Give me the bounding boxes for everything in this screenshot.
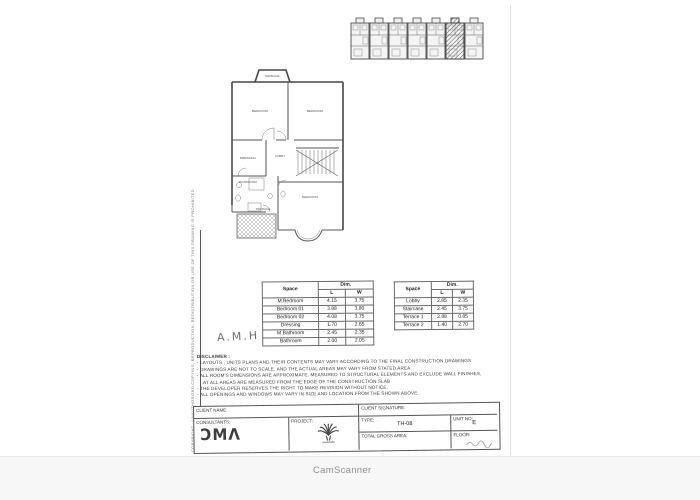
room-width: 2.35 xyxy=(346,329,374,337)
camscanner-band: CamScanner xyxy=(0,456,700,500)
room-length: 2.00 xyxy=(319,337,346,345)
room-length: 3.88 xyxy=(318,305,345,313)
floor-cell: FLOOR: xyxy=(451,431,497,449)
rooms-header-l: L xyxy=(318,289,345,297)
bay-window-bottom xyxy=(295,230,322,241)
area-width: 2.70 xyxy=(453,321,474,329)
area-length: 2.45 xyxy=(432,305,453,313)
area-length: 2.88 xyxy=(432,313,453,321)
label-dressing: DRESSING xyxy=(240,156,257,160)
handwritten-initials: A.M.H xyxy=(217,329,260,344)
type-value: TH-08 xyxy=(359,420,450,427)
room-labels: TERRACE BEDROOM BEDROOM DRESSING LOBBY B… xyxy=(239,74,323,211)
scanned-floorplan-page: COPYRIGHT : UNAUTHORIZED COPYING, REPROD… xyxy=(0,0,700,500)
client-name-label: CLIENT NAME: xyxy=(196,406,356,413)
area-width: 0.85 xyxy=(453,313,474,321)
dma-consultants-logo: ƆMΛ xyxy=(200,425,241,444)
terrace-hatch xyxy=(237,214,276,238)
disclaimer-line: - ALL OPENINGS AND WINDOWS MAY VARY IN S… xyxy=(197,390,497,399)
label-lobby: LOBBY xyxy=(275,154,285,158)
area-length: 1.40 xyxy=(432,321,453,329)
room-length: 4.08 xyxy=(318,313,345,321)
door-swings xyxy=(238,128,286,212)
key-plan-unit-strip xyxy=(350,15,484,65)
label-bedroom-bottom: BEDROOM xyxy=(302,195,318,199)
area-width: 2.35 xyxy=(452,297,473,305)
label-terrace-bottom: TERRACE xyxy=(256,207,271,211)
room-dimensions-table: Space Dim. L W M.Bedroom 4.15 3.75 Bedro… xyxy=(262,281,375,347)
project-cell: PROJECT: xyxy=(289,417,359,451)
staircase xyxy=(296,150,338,176)
areas-header-space: Space xyxy=(394,282,431,298)
table-row: Bathroom 2.00 2.05 xyxy=(263,337,374,346)
total-area-label: TOTAL GROSS AREA: xyxy=(361,432,448,438)
areas-header-w: W xyxy=(452,289,473,297)
floor-label: FLOOR: xyxy=(453,432,495,438)
floor-value-handwriting xyxy=(465,438,493,449)
room-name: Bathroom xyxy=(263,337,319,345)
type-cell: TYPE: TH-08 xyxy=(359,415,451,432)
unit-no-cell: UNIT NO: E xyxy=(451,415,497,432)
floor-plan: TERRACE BEDROOM BEDROOM DRESSING LOBBY B… xyxy=(218,64,348,242)
room-width: 2.05 xyxy=(346,337,374,345)
highlighted-unit-hatch xyxy=(446,18,464,59)
label-bedroom-tl: BEDROOM xyxy=(252,109,268,113)
room-length: 4.15 xyxy=(318,297,345,305)
room-width: 2.65 xyxy=(346,321,374,329)
room-length: 2.45 xyxy=(319,329,346,337)
room-width: 3.80 xyxy=(345,305,373,313)
camscanner-watermark: CamScanner xyxy=(313,465,371,476)
area-name: Terrace 2 xyxy=(395,322,432,330)
consultants-cell: CONSULTANTS: ƆMΛ xyxy=(194,418,289,452)
unit-no-value: E xyxy=(451,420,497,427)
area-width: 3.75 xyxy=(452,305,473,313)
label-terrace-top: TERRACE xyxy=(265,74,280,78)
table-row: Terrace 2 1.40 2.70 xyxy=(395,321,474,330)
disclaimer-block: DISCLAIMER : - LAYOUTS , UNITS PLANS AND… xyxy=(197,352,497,399)
areas-dimensions-table: Space Dim. L W Lobby 2.85 2.35 Staircase… xyxy=(394,281,474,331)
label-bedroom-tr: BEDROOM xyxy=(307,109,323,113)
room-width: 3.75 xyxy=(345,313,373,321)
title-block: CLIENT NAME: CLIENT SIGNATURE: CONSULTAN… xyxy=(193,402,501,454)
palm-tree-logo xyxy=(315,422,341,446)
page-right-edge-line xyxy=(510,5,511,455)
total-area-cell: TOTAL GROSS AREA: xyxy=(359,431,451,449)
client-signature-label: CLIENT SIGNATURE: xyxy=(361,404,495,411)
area-length: 2.85 xyxy=(431,297,452,305)
rooms-header-w: W xyxy=(345,289,373,297)
bay-window-bottom-inner xyxy=(297,230,320,239)
rooms-header-space: Space xyxy=(262,281,318,297)
label-bathroom: BATHROOM xyxy=(239,180,257,184)
consultants-label: CONSULTANTS: xyxy=(196,419,286,425)
room-width: 3.75 xyxy=(345,297,373,305)
room-length: 1.70 xyxy=(319,321,346,329)
areas-header-l: L xyxy=(431,289,452,297)
